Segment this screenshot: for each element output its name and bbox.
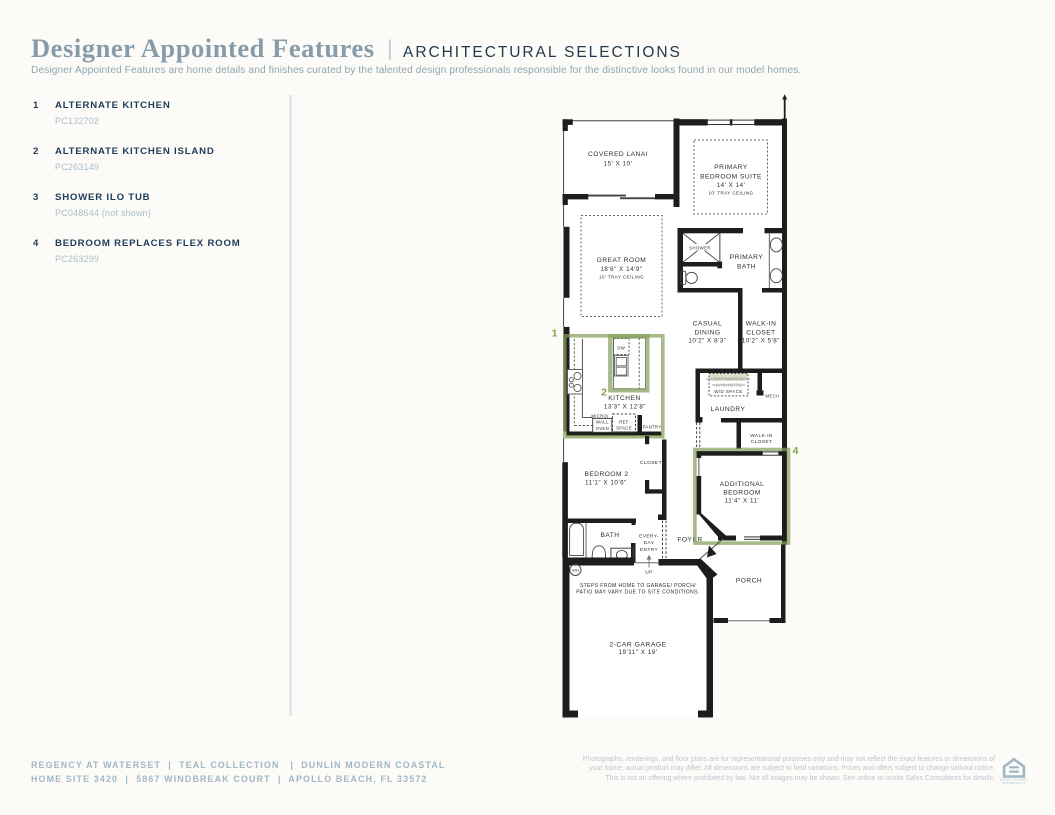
svg-text:W/D SPACE: W/D SPACE [714, 389, 743, 394]
svg-text:BATH: BATH [600, 532, 619, 539]
svg-text:CLOSET: CLOSET [640, 460, 662, 466]
svg-text:ADDITIONAL: ADDITIONAL [720, 481, 765, 488]
svg-text:14' X 14': 14' X 14' [717, 182, 746, 189]
svg-text:DW: DW [617, 345, 625, 350]
svg-text:OPPORTUNITY: OPPORTUNITY [1002, 781, 1026, 785]
svg-text:CLOSET: CLOSET [746, 329, 775, 336]
svg-text:LAUNDRY: LAUNDRY [711, 406, 746, 413]
svg-text:2: 2 [601, 387, 607, 399]
svg-text:EVERY-: EVERY- [639, 533, 659, 539]
svg-text:2-CAR GARAGE: 2-CAR GARAGE [609, 641, 666, 648]
svg-text:COVERED LANAI: COVERED LANAI [588, 151, 648, 158]
svg-text:MECH: MECH [765, 394, 779, 399]
svg-text:WALL: WALL [596, 420, 609, 425]
svg-text:REF: REF [619, 419, 629, 424]
svg-text:WH: WH [572, 568, 579, 573]
svg-text:CLOSET: CLOSET [751, 439, 773, 445]
svg-text:PRIMARY: PRIMARY [714, 164, 748, 171]
svg-text:1: 1 [552, 328, 558, 340]
svg-text:10' TRAY CEILING: 10' TRAY CEILING [599, 275, 644, 280]
svg-text:10'2" X 8'3": 10'2" X 8'3" [688, 338, 726, 345]
svg-text:SHOWER: SHOWER [689, 246, 711, 251]
svg-text:PANTRY: PANTRY [643, 425, 662, 430]
svg-text:STEPS FROM HOME TO GARAGE/ POR: STEPS FROM HOME TO GARAGE/ PORCH/ [580, 583, 696, 589]
svg-text:15' X 10': 15' X 10' [604, 161, 633, 168]
svg-text:KITCHEN: KITCHEN [608, 395, 640, 402]
svg-text:18'6" X 14'9": 18'6" X 14'9" [600, 266, 642, 273]
svg-text:CASUAL: CASUAL [693, 321, 722, 328]
svg-text:BEDROOM 2: BEDROOM 2 [584, 471, 628, 478]
svg-text:OVEN: OVEN [596, 426, 609, 431]
svg-text:DINING: DINING [694, 329, 720, 336]
svg-text:19'11" X 19': 19'11" X 19' [619, 649, 658, 656]
svg-text:PATIO MAY VARY DUE TO SITE CON: PATIO MAY VARY DUE TO SITE CONDITIONS. [576, 590, 699, 596]
svg-text:SPACE: SPACE [616, 426, 632, 431]
svg-text:WALK-IN: WALK-IN [746, 321, 777, 328]
svg-text:13'3" X 12'8": 13'3" X 12'8" [604, 403, 646, 410]
svg-text:BEDROOM: BEDROOM [723, 490, 761, 497]
svg-text:MICRO/: MICRO/ [591, 413, 609, 418]
svg-text:11'4" X 11': 11'4" X 11' [725, 498, 759, 505]
svg-text:BATH: BATH [737, 263, 756, 270]
svg-text:10'2" X 5'8": 10'2" X 5'8" [742, 338, 780, 345]
svg-text:4: 4 [793, 445, 799, 457]
svg-text:10' TRAY CEILING: 10' TRAY CEILING [708, 190, 753, 195]
svg-text:GREAT ROOM: GREAT ROOM [597, 257, 646, 264]
svg-text:ENTRY: ENTRY [640, 547, 659, 553]
svg-text:WALK-IN: WALK-IN [750, 433, 773, 439]
svg-text:UP: UP [645, 569, 652, 575]
svg-text:DAY: DAY [644, 540, 655, 546]
svg-text:BEDROOM SUITE: BEDROOM SUITE [700, 173, 762, 180]
svg-text:11'1" X 10'6": 11'1" X 10'6" [585, 479, 627, 486]
svg-text:PRIMARY: PRIMARY [730, 254, 764, 261]
svg-text:PORCH: PORCH [736, 578, 762, 585]
